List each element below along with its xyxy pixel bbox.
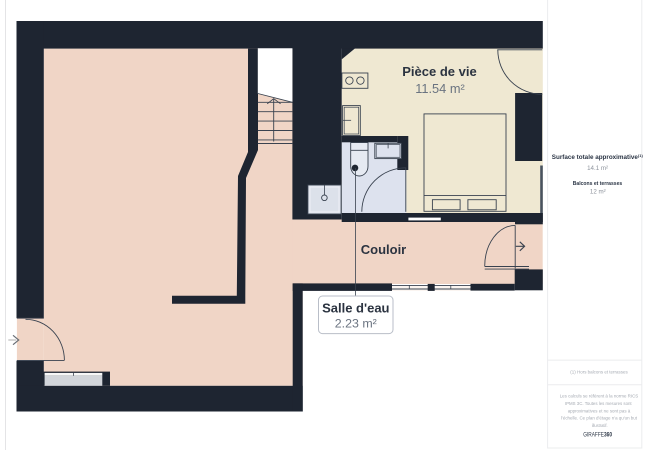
svg-text:Couloir: Couloir	[361, 242, 407, 257]
svg-text:Salle d'eau: Salle d'eau	[322, 301, 389, 316]
svg-text:12 m²: 12 m²	[590, 189, 606, 196]
svg-text:illustratif.: illustratif.	[592, 423, 608, 429]
svg-text:Surface totale approximative(1: Surface totale approximative(1)	[552, 153, 644, 161]
svg-text:l'échelle. Ce plan d'étage n'a: l'échelle. Ce plan d'étage n'a qu'un but	[561, 416, 638, 422]
svg-text:IPMS 3C. Toutes les mesures so: IPMS 3C. Toutes les mesures sont	[565, 401, 632, 407]
svg-text:14.1 m²: 14.1 m²	[587, 165, 608, 172]
svg-text:Les calculs se réfèrent à la n: Les calculs se réfèrent à la norme RICS	[560, 393, 639, 399]
svg-text:GIRAFFE360: GIRAFFE360	[583, 432, 612, 439]
svg-text:(1) Hors balcons et terrasses: (1) Hors balcons et terrasses	[570, 370, 628, 376]
svg-text:2.23 m²: 2.23 m²	[335, 317, 377, 331]
svg-text:Balcons et terrasses: Balcons et terrasses	[573, 181, 623, 187]
svg-text:11.54 m²: 11.54 m²	[415, 81, 465, 96]
svg-text:approximatives et ne sont pas: approximatives et ne sont pas à	[568, 408, 631, 414]
svg-text:Pièce de vie: Pièce de vie	[402, 64, 476, 79]
